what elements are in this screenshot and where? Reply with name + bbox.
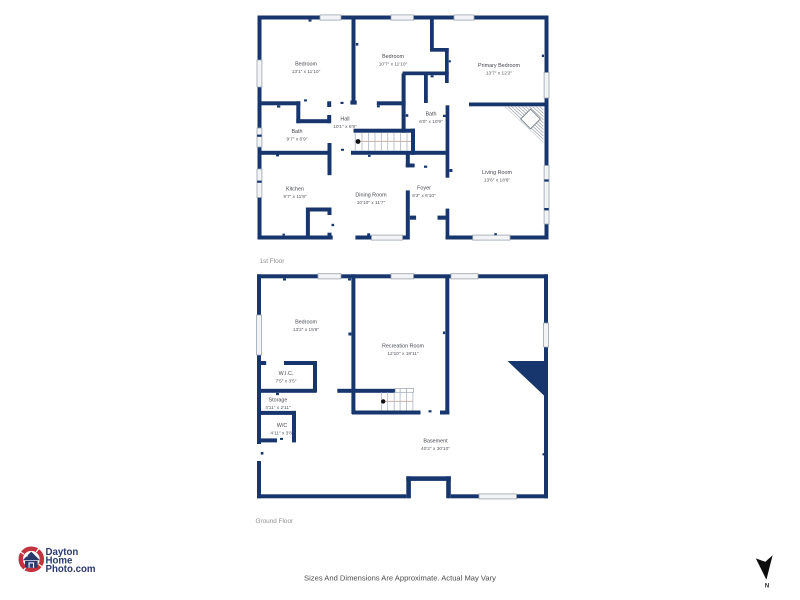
svg-text:10′1″ x 6′9″: 10′1″ x 6′9″ [333,124,357,130]
svg-text:Photo.com: Photo.com [46,564,96,575]
svg-text:12′10″ x 18′11″: 12′10″ x 18′11″ [387,351,419,357]
svg-text:N: N [765,583,770,590]
svg-text:9′7″ x 11′8″: 9′7″ x 11′8″ [283,194,307,200]
svg-text:13′7″ x 12′2″: 13′7″ x 12′2″ [486,71,513,77]
svg-text:W/C: W/C [277,423,288,429]
svg-text:4′11″ x 2′11″: 4′11″ x 2′11″ [265,405,291,411]
svg-text:1st Floor: 1st Floor [260,258,286,265]
svg-text:Hall: Hall [340,117,349,123]
svg-text:6′3″ x 6′10″: 6′3″ x 6′10″ [412,193,436,199]
svg-text:40′2″ x 30′10″: 40′2″ x 30′10″ [421,446,450,452]
svg-text:Ground Floor: Ground Floor [256,518,295,525]
svg-text:Recreation Room: Recreation Room [382,343,424,349]
svg-text:Bedroom: Bedroom [295,62,317,68]
svg-text:Kitchen: Kitchen [286,187,304,193]
svg-text:13′2″ x 15′8″: 13′2″ x 15′8″ [293,327,320,333]
svg-text:Foyer: Foyer [417,186,431,192]
svg-text:13′6″ x 18′6″: 13′6″ x 18′6″ [484,178,511,184]
svg-text:Bedroom: Bedroom [295,320,317,326]
svg-text:Basement: Basement [423,439,448,445]
svg-text:4′11″ x 3′8″: 4′11″ x 3′8″ [270,431,294,437]
svg-text:Sizes And Dimensions Are Appro: Sizes And Dimensions Are Approximate. Ac… [304,574,496,583]
svg-text:10′10″ x 11′7″: 10′10″ x 11′7″ [357,200,386,206]
svg-text:9′7″ x 6′9″: 9′7″ x 6′9″ [287,137,308,143]
svg-text:W.I.C.: W.I.C. [279,371,294,377]
svg-text:10′7″ x 11′10″: 10′7″ x 11′10″ [379,62,408,68]
svg-text:Bedroom: Bedroom [382,54,404,60]
svg-text:Storage: Storage [269,398,288,404]
svg-text:Primary Bedroom: Primary Bedroom [478,63,520,69]
svg-text:6′0″ x 10′9″: 6′0″ x 10′9″ [419,119,443,125]
svg-text:Bath: Bath [425,112,436,118]
svg-text:13′1″ x 11′10″: 13′1″ x 11′10″ [292,69,321,75]
svg-text:Dining Room: Dining Room [355,193,387,199]
svg-text:7′5″ x 3′5″: 7′5″ x 3′5″ [276,379,297,385]
svg-text:Bath: Bath [291,129,302,135]
svg-text:Living Room: Living Room [482,170,512,176]
